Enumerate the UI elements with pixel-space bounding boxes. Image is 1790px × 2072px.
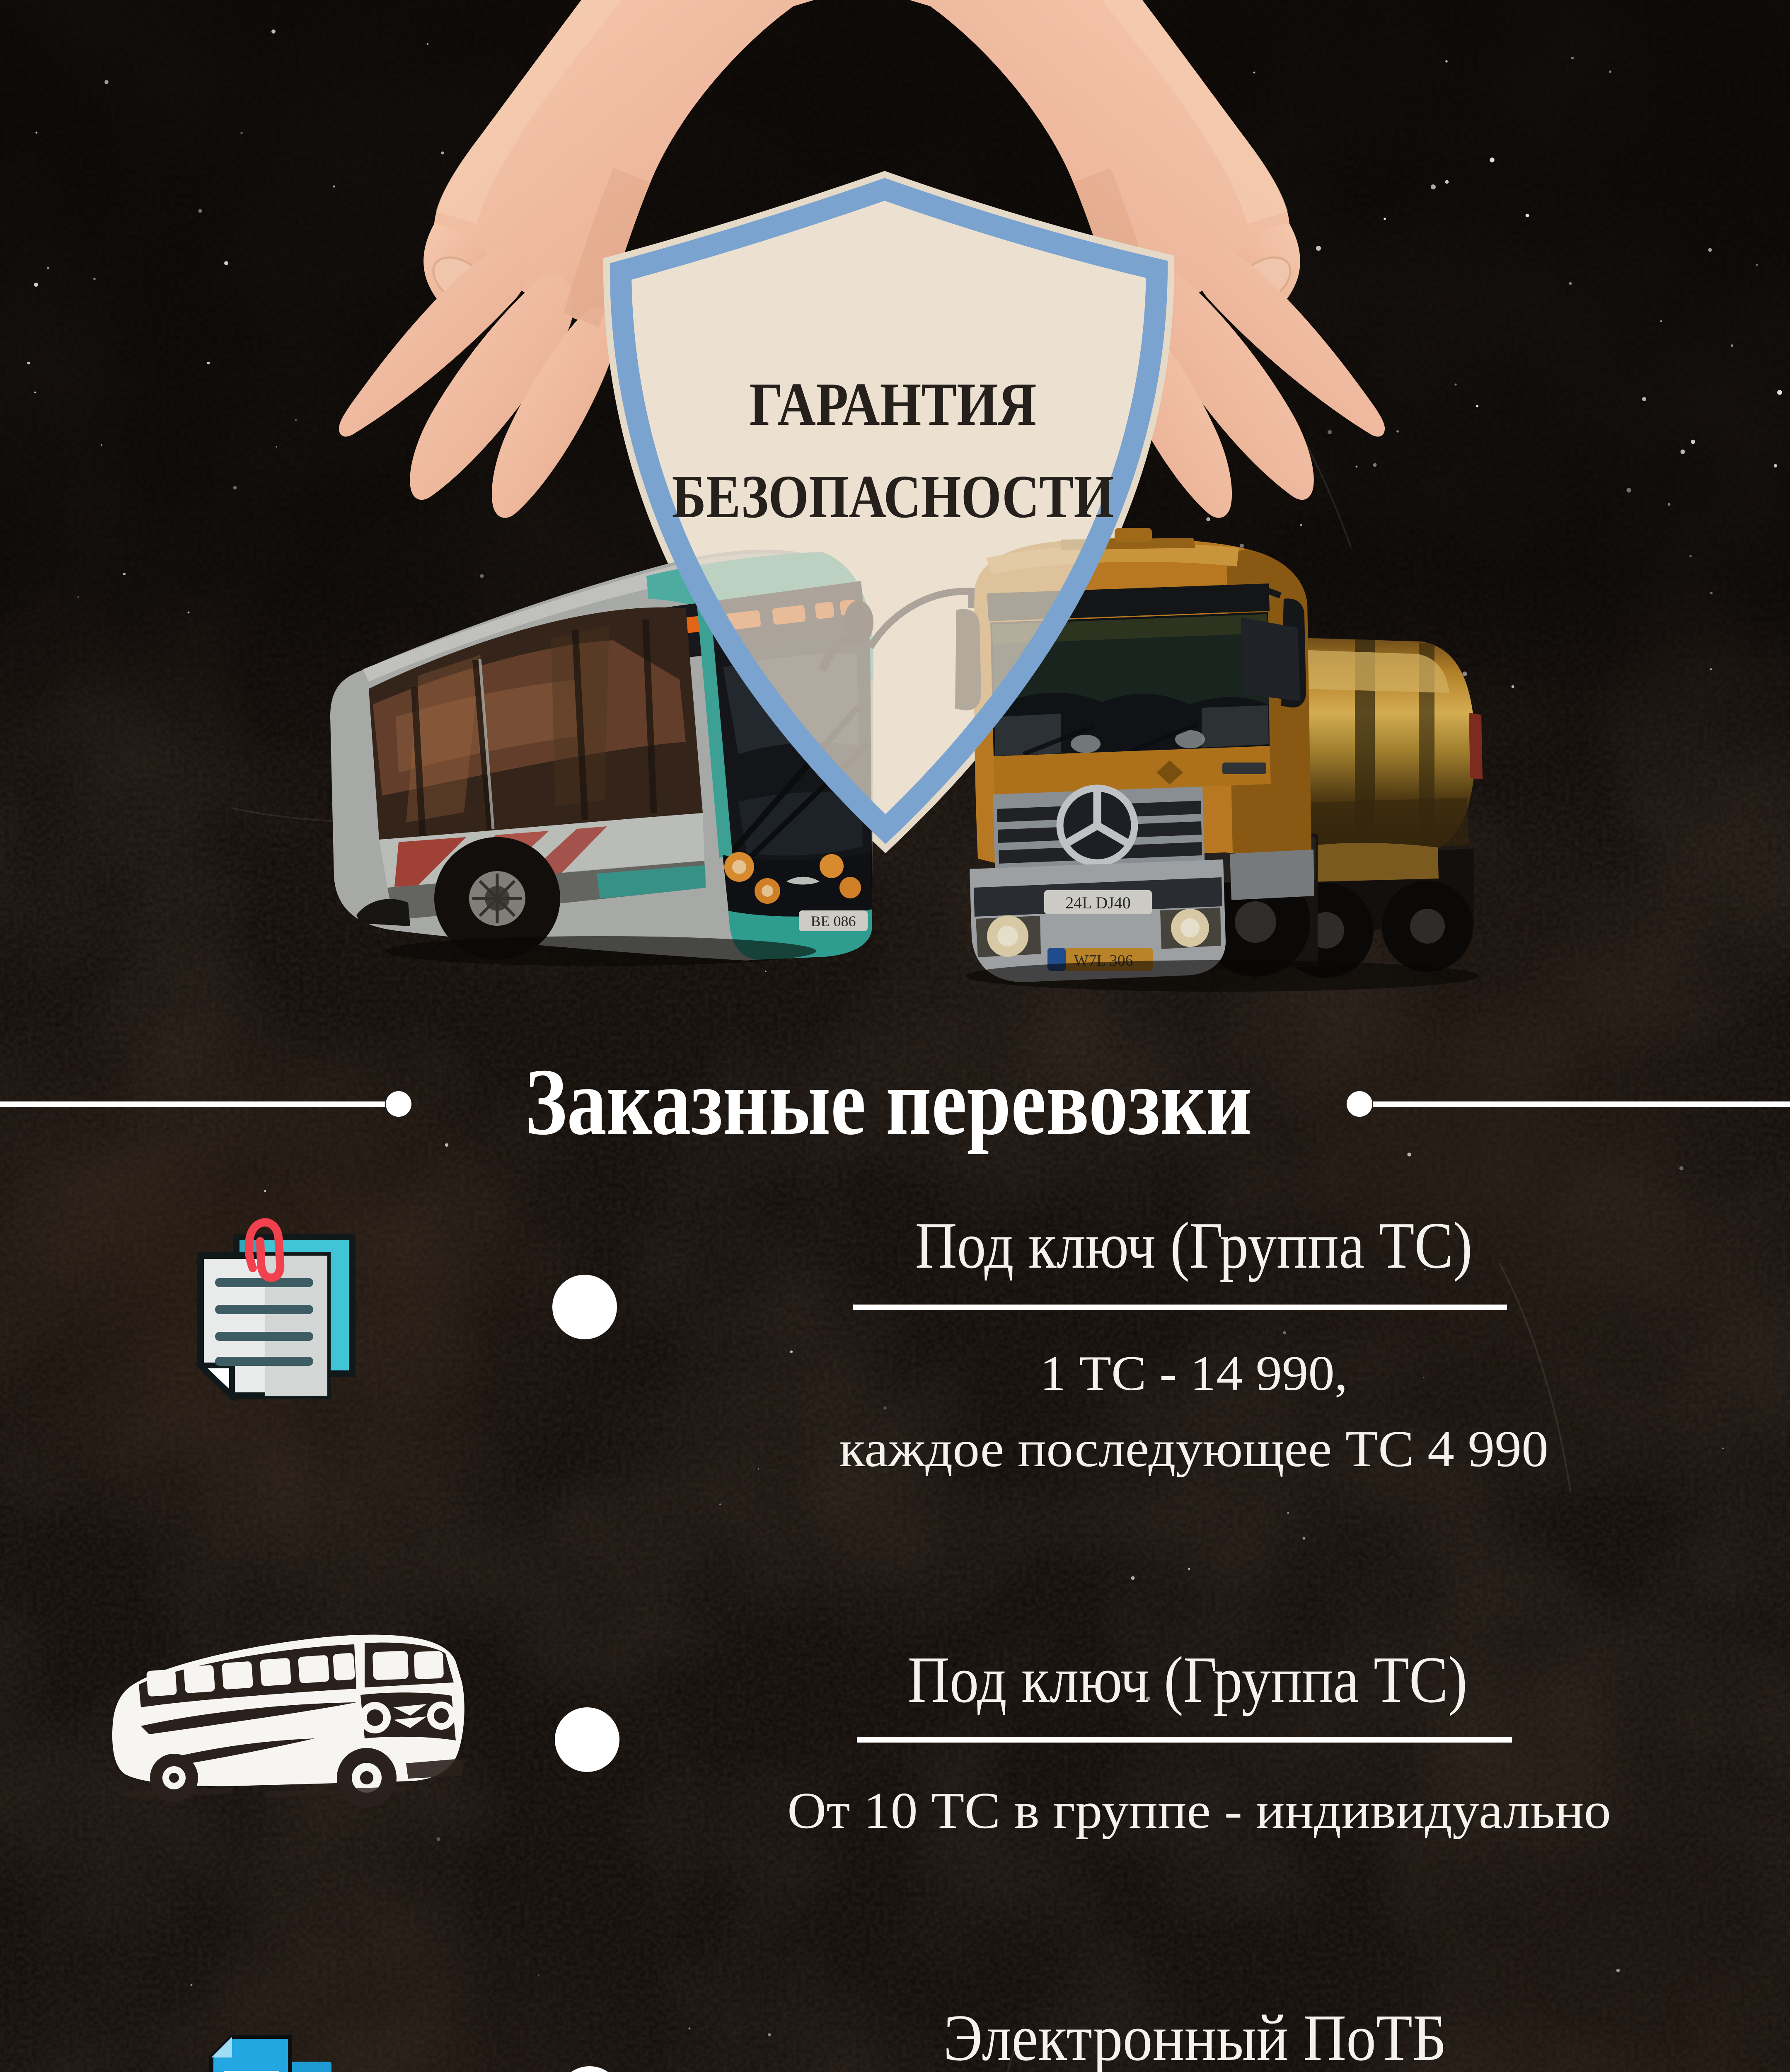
svg-text:Под ключ (Группа ТС): Под ключ (Группа ТС) xyxy=(908,1643,1468,1716)
svg-text:1 ТС - 14 990,: 1 ТС - 14 990, xyxy=(1040,1346,1348,1401)
svg-text:Электронный ПоТБ: Электронный ПоТБ xyxy=(943,2001,1447,2072)
svg-text:Под ключ (Группа ТС): Под ключ (Группа ТС) xyxy=(915,1208,1473,1282)
svg-text:Заказные перевозки: Заказные перевозки xyxy=(525,1049,1252,1155)
svg-text:каждое последующее ТС 4 990: каждое последующее ТС 4 990 xyxy=(839,1421,1548,1478)
svg-text:От 10 ТС в группе - индивидуал: От 10 ТС в группе - индивидуально xyxy=(787,1782,1611,1840)
svg-text:ГАРАНТИЯ: ГАРАНТИЯ xyxy=(750,370,1037,438)
svg-text:БЕЗОПАСНОСТИ: БЕЗОПАСНОСТИ xyxy=(672,463,1114,531)
svg-text:24L DJ40: 24L DJ40 xyxy=(1065,893,1130,912)
svg-text:BE 086: BE 086 xyxy=(810,913,856,929)
